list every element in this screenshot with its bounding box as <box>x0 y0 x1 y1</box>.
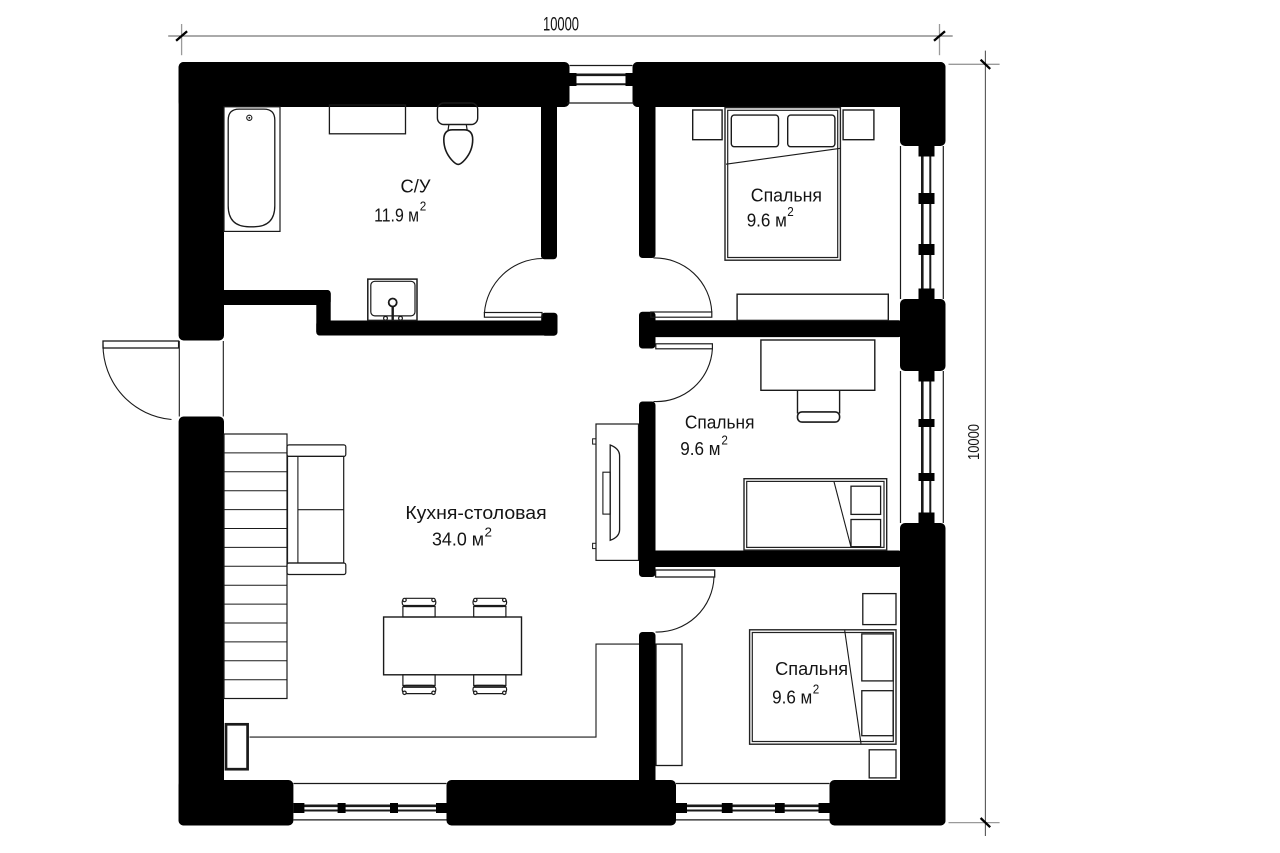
svg-text:9.6 м: 9.6 м <box>747 209 787 230</box>
svg-text:Спальня: Спальня <box>751 185 822 206</box>
svg-text:34.0 м: 34.0 м <box>432 529 484 550</box>
svg-text:9.6 м: 9.6 м <box>772 686 812 707</box>
svg-text:2: 2 <box>721 434 728 448</box>
svg-text:Спальня: Спальня <box>775 658 848 679</box>
svg-text:Кухня-столовая: Кухня-столовая <box>405 502 546 523</box>
svg-text:9.6 м: 9.6 м <box>680 438 720 459</box>
svg-text:2: 2 <box>813 682 820 696</box>
svg-text:11.9 м: 11.9 м <box>374 204 419 225</box>
svg-text:2: 2 <box>420 200 427 214</box>
svg-text:2: 2 <box>485 525 493 539</box>
svg-text:Спальня: Спальня <box>685 412 755 433</box>
svg-text:2: 2 <box>787 205 794 219</box>
svg-text:10000: 10000 <box>543 14 579 35</box>
svg-text:10000: 10000 <box>966 424 983 460</box>
svg-text:С/У: С/У <box>401 175 431 196</box>
